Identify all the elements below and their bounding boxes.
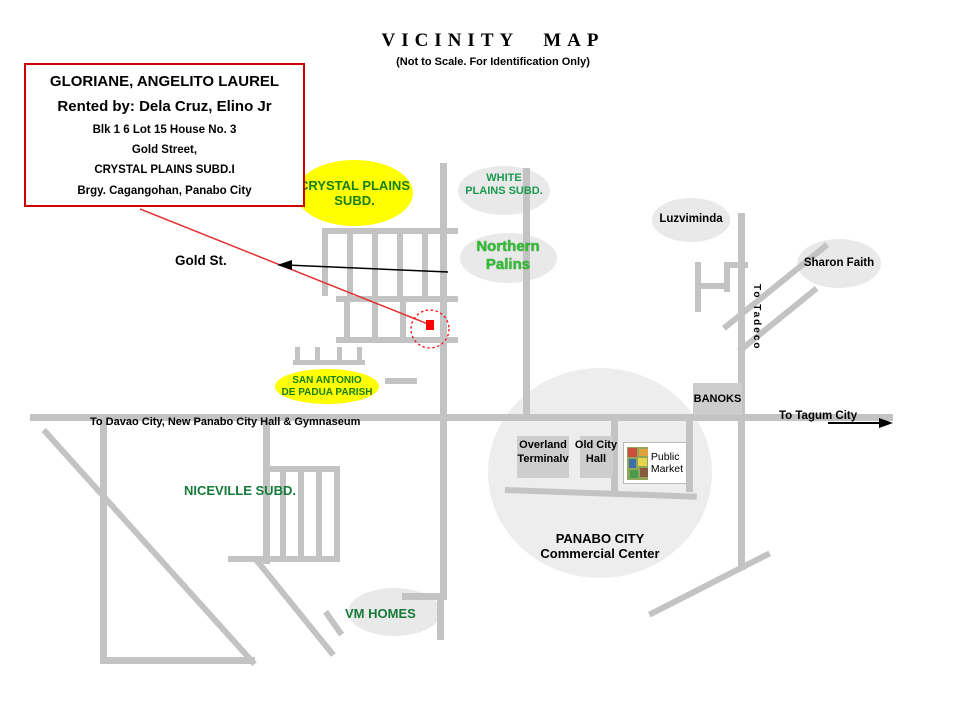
road-segment-diagonal <box>252 556 335 657</box>
road-segment-v1-elbow <box>402 593 445 600</box>
location-marker-square <box>426 320 434 330</box>
road-segment <box>344 296 350 343</box>
road-segment <box>686 421 693 492</box>
public-market-box: Public Market <box>623 442 687 484</box>
luzviminda-label: Luzviminda <box>652 213 730 225</box>
vicinity-title: VICINITY MAP <box>312 30 674 52</box>
road-segment <box>316 466 322 560</box>
overland-terminal-label: Overland Terminalv <box>508 438 578 466</box>
public-market-label: Public Market <box>651 451 683 475</box>
road-segment <box>385 378 417 384</box>
road-segment <box>334 466 340 560</box>
road-segment <box>322 228 328 296</box>
road-segment <box>372 296 378 343</box>
road-segment <box>280 466 286 560</box>
info-box: GLORIANE, ANGELITO LAUREL Rented by: Del… <box>24 63 305 207</box>
road-segment <box>322 228 458 234</box>
banoks-label: BANOKS <box>694 393 742 405</box>
sharon-faith-label: Sharon Faith <box>797 257 881 269</box>
road-segment <box>293 360 365 365</box>
davao-road-label: To Davao City, New Panabo City Hall & Gy… <box>90 416 360 428</box>
vm-homes-label: VM HOMES <box>345 606 416 621</box>
vicinity-map: CRYSTAL PLAINS SUBD. SAN ANTONIO DE PADU… <box>0 0 960 720</box>
niceville-label: NICEVILLE SUBD. <box>184 483 296 498</box>
crystal-plains-label: CRYSTAL PLAINS <box>299 178 410 193</box>
road-segment <box>336 296 458 302</box>
road-segment-diagonal <box>648 551 771 618</box>
info-subdivision: CRYSTAL PLAINS SUBD.I <box>94 164 234 176</box>
road-segment <box>397 228 403 296</box>
info-barangay: Brgy. Cagangohan, Panabo City <box>77 185 251 197</box>
road-segment <box>336 337 458 343</box>
road-segment <box>422 228 428 296</box>
crystal-plains-ellipse: CRYSTAL PLAINS SUBD. <box>296 160 413 226</box>
gold-st-arrow-head <box>277 260 292 270</box>
info-owner: GLORIANE, ANGELITO LAUREL <box>50 73 279 90</box>
road-segment <box>228 556 340 562</box>
panabo-city-label: PANABO CITY Commercial Center <box>540 531 660 561</box>
info-blk-lot: Blk 1 6 Lot 15 House No. 3 <box>93 124 237 136</box>
road-segment <box>400 296 406 343</box>
road-segment-diagonal <box>42 428 257 666</box>
crystal-plains-label2: SUBD. <box>299 193 410 208</box>
road-segment <box>695 283 730 289</box>
old-city-hall-label: Old City Hall <box>571 438 621 466</box>
northern-palins-label: Northern Palins <box>458 238 558 274</box>
map-header: VICINITY MAP (Not to Scale. For Identifi… <box>312 30 674 68</box>
tagum-road-label: To Tagum City <box>779 410 857 422</box>
public-market-image <box>627 447 648 480</box>
road-segment <box>372 228 378 296</box>
road-segment <box>298 466 304 560</box>
san-antonio-label: SAN ANTONIO <box>282 375 373 387</box>
road-segment-v1-tail <box>437 600 444 640</box>
road-segment <box>323 610 344 636</box>
road-segment-v2 <box>523 168 530 418</box>
gold-st-label: Gold St. <box>175 253 227 268</box>
road-segment <box>100 421 107 664</box>
info-street: Gold Street, <box>132 144 197 156</box>
san-antonio-ellipse: SAN ANTONIO DE PADUA PARISH <box>275 369 379 404</box>
white-plains-label: WHITE PLAINS SUBD. <box>458 172 550 198</box>
road-segment-diagonal <box>737 286 818 354</box>
road-segment <box>268 466 340 472</box>
road-segment <box>724 262 748 268</box>
san-antonio-label2: DE PADUA PARISH <box>282 387 373 399</box>
road-segment <box>100 657 255 664</box>
banoks-box: BANOKS <box>693 383 742 415</box>
map-subtitle: (Not to Scale. For Identification Only) <box>312 56 674 68</box>
road-segment <box>347 228 353 296</box>
info-renter: Rented by: Dela Cruz, Elino Jr <box>57 98 271 115</box>
to-tadeco-label: To Tadeco <box>751 284 762 351</box>
